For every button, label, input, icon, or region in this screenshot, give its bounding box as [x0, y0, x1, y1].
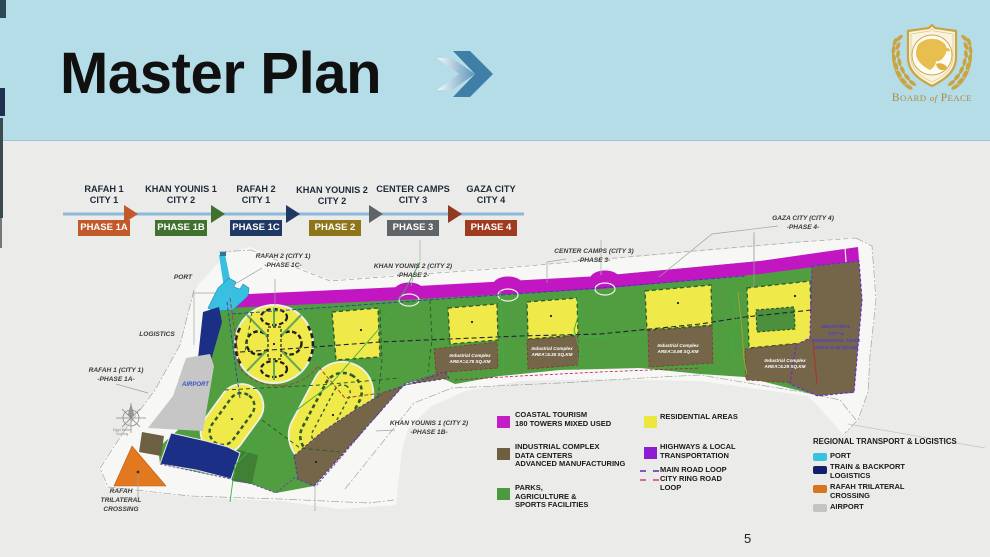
svg-text:Industrial Complex: Industrial Complex	[657, 343, 699, 348]
svg-text:CENTER CAMPS (CITY 3): CENTER CAMPS (CITY 3)	[554, 248, 633, 255]
svg-text:-PHASE 1C-: -PHASE 1C-	[264, 262, 301, 269]
svg-text:INDUSTRIAL: INDUSTRIAL	[821, 324, 851, 330]
svg-text:RAFAH 2 (CITY 1): RAFAH 2 (CITY 1)	[256, 253, 311, 260]
svg-text:Industrial Complex: Industrial Complex	[764, 358, 806, 363]
svg-text:CROSSING: CROSSING	[103, 506, 138, 513]
svg-text:RAFAH: RAFAH	[110, 488, 133, 495]
svg-text:KHAN YOUNIS 1 (CITY 2): KHAN YOUNIS 1 (CITY 2)	[390, 420, 468, 427]
svg-text:Industrial Complex: Industrial Complex	[449, 353, 491, 358]
svg-text:AREA=4.75 SQ.KM: AREA=4.75 SQ.KM	[449, 359, 491, 364]
svg-text:PORT: PORT	[174, 274, 193, 281]
svg-text:TRILATERAL: TRILATERAL	[101, 497, 142, 504]
svg-text:AREA=6.35 SQ.KM: AREA=6.35 SQ.KM	[531, 352, 573, 357]
svg-text:-PHASE 3-: -PHASE 3-	[578, 257, 611, 264]
svg-text:KHAN YOUNIS 2 (CITY 2): KHAN YOUNIS 2 (CITY 2)	[374, 263, 452, 270]
svg-text:RESIDENTIAL TWRS: RESIDENTIAL TWRS	[812, 338, 861, 344]
svg-text:-PHASE 2-: -PHASE 2-	[397, 272, 430, 279]
svg-text:AIRPORT: AIRPORT	[181, 382, 210, 388]
svg-text:GAZA CITY (CITY 4): GAZA CITY (CITY 4)	[772, 215, 834, 222]
svg-text:Crossing: Crossing	[116, 432, 129, 436]
svg-text:Industrial Complex: Industrial Complex	[531, 346, 573, 351]
svg-text:-PHASE 4-: -PHASE 4-	[787, 224, 820, 231]
svg-text:AREA=6.29 SQ.KM: AREA=6.29 SQ.KM	[764, 364, 806, 369]
svg-text:AREA=9.49 SQ.KM: AREA=9.49 SQ.KM	[813, 345, 859, 351]
svg-text:-PHASE 1B-: -PHASE 1B-	[410, 429, 447, 436]
svg-text:RAFAH 1 (CITY 1): RAFAH 1 (CITY 1)	[89, 367, 144, 374]
svg-text:LOGISTICS: LOGISTICS	[139, 331, 175, 338]
svg-text:AREA=6.98 SQ.KM: AREA=6.98 SQ.KM	[657, 349, 699, 354]
svg-text:CITY &: CITY &	[828, 331, 844, 337]
svg-text:-PHASE 1A-: -PHASE 1A-	[97, 376, 134, 383]
